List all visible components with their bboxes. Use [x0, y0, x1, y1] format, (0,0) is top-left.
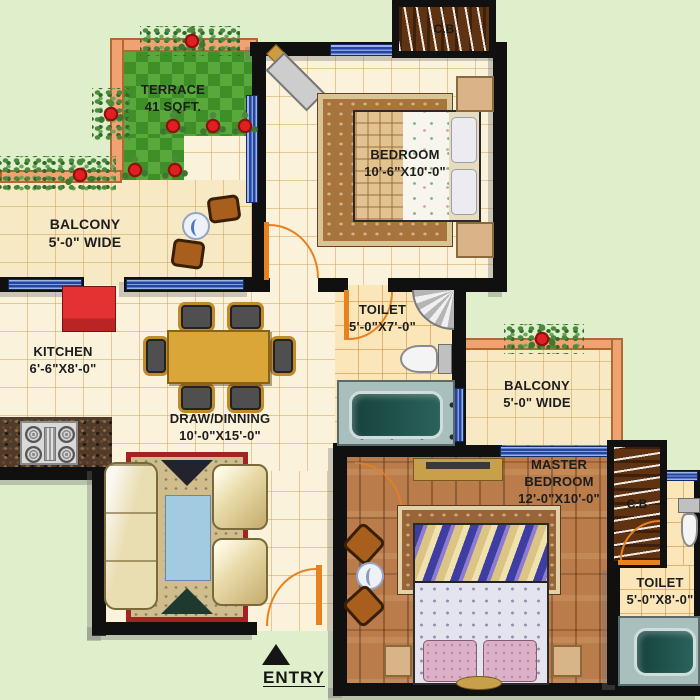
- bathtub: [634, 628, 696, 676]
- dining-chair: [143, 336, 169, 376]
- draw-dining-label: DRAW/DINNING 10'-0"X15'-0": [145, 411, 295, 445]
- tv-unit: [413, 458, 503, 481]
- balcony-left-label: BALCONY 5'-0" WIDE: [30, 215, 140, 251]
- master-bed: [413, 523, 549, 685]
- window-balcony-left-b: [126, 279, 244, 290]
- entry-door-leaf: [316, 565, 322, 625]
- master-round-table: [356, 562, 384, 590]
- kitchen-label: KITCHEN 6'-6"X8'-0": [8, 344, 118, 378]
- toilet-top-name: TOILET: [340, 302, 425, 319]
- burner-icon: [25, 426, 42, 443]
- window-toilet-right: [662, 471, 698, 481]
- burner-icon: [58, 426, 75, 443]
- balcony-table: [182, 212, 210, 240]
- toilet-right-tub-platform: [618, 616, 700, 686]
- bathtub: [349, 391, 443, 439]
- master-bedroom-label: MASTER BEDROOM 12'-0"X10'-0": [498, 457, 620, 508]
- kitchen-name: KITCHEN: [8, 344, 118, 361]
- balcony-chair-1: [206, 194, 241, 224]
- wc-bowl: [400, 345, 438, 373]
- bedroom-dims: 10'-6"X10'-0": [345, 164, 465, 181]
- wc-tank: [678, 498, 700, 513]
- wall-bedroom-right: [493, 42, 507, 292]
- dining-table: [167, 330, 270, 384]
- toilet-right-label: TOILET 5'-0"X8'-0": [620, 575, 700, 609]
- wall-master-left: [333, 443, 347, 693]
- terrace-tile-notch: [184, 136, 252, 180]
- rose-terrace-3: [230, 112, 260, 140]
- sofa-three-seater: [104, 462, 158, 610]
- dining-chair: [270, 336, 296, 376]
- balcony-left-name: BALCONY: [30, 215, 140, 233]
- wall-dining-bottom: [92, 622, 257, 635]
- rose-terrace-5: [160, 156, 190, 184]
- floor-plan: C.B C.B: [0, 0, 700, 700]
- master-name-1: MASTER: [498, 457, 620, 474]
- terrace-label: TERRACE 41 SQFT.: [128, 82, 218, 116]
- toilet-top-wc: [400, 342, 452, 376]
- master-nightstand: [552, 645, 582, 677]
- entry-label: ENTRY: [248, 668, 340, 688]
- toilet-right-name: TOILET: [620, 575, 700, 592]
- balcony-chair-2: [170, 238, 206, 270]
- bedroom-name: BEDROOM: [345, 147, 465, 164]
- toilet-top-dims: 5'-0"X7'-0": [340, 319, 425, 336]
- nightstand: [456, 76, 494, 112]
- dining-chair: [227, 383, 264, 413]
- balcony-right-wall-side: [611, 338, 623, 446]
- window-bedroom-top: [330, 44, 398, 56]
- rose-balcony-left: [62, 158, 98, 192]
- balcony-table-glyph: [191, 219, 204, 236]
- rose-terrace-left: [96, 100, 126, 128]
- wc-tank: [438, 344, 452, 374]
- coffee-table: [165, 495, 211, 581]
- dining-chair: [178, 302, 215, 332]
- wall-master-top-a: [346, 445, 502, 457]
- toilet-right-door-leaf: [618, 560, 660, 565]
- window-master-top: [500, 446, 612, 457]
- master-pillow: [483, 640, 537, 682]
- gas-stove: [20, 421, 78, 465]
- toilet-right-dims: 5'-0"X8'-0": [620, 592, 700, 609]
- wc-bowl: [681, 513, 698, 547]
- dining-chair: [227, 302, 264, 332]
- wall-bedroom-bottom-a: [250, 278, 270, 292]
- armchair-2: [212, 538, 268, 606]
- bed-bench: [456, 676, 502, 690]
- rose-terrace-1: [158, 112, 188, 140]
- cupboard-top-label: C.B: [399, 7, 489, 51]
- draw-dining-dims: 10'-0"X15'-0": [145, 428, 295, 445]
- burner-icon: [58, 446, 75, 463]
- toilet-right-wc: [678, 498, 700, 550]
- cupboard-top: C.B: [392, 0, 496, 58]
- nightstand: [456, 222, 494, 258]
- toilet-top-tub-platform: [337, 380, 455, 446]
- balcony-right-label: BALCONY 5'-0" WIDE: [482, 378, 592, 412]
- master-name-2: BEDROOM: [498, 474, 620, 491]
- rose-balcony-right: [526, 324, 558, 354]
- entry-arrow-icon: [262, 644, 290, 665]
- dining-chair: [178, 383, 215, 413]
- rug-pattern-bottom: [161, 588, 213, 614]
- armchair-1: [212, 464, 268, 530]
- table-glyph: [366, 568, 377, 586]
- burner-icon: [25, 446, 42, 463]
- balcony-right-dims: 5'-0" WIDE: [482, 395, 592, 412]
- master-dims: 12'-0"X10'-0": [498, 491, 620, 508]
- toilet-top-label: TOILET 5'-0"X7'-0": [340, 302, 425, 336]
- terrace-name: TERRACE: [128, 82, 218, 99]
- kitchen-dims: 6'-6"X8'-0": [8, 361, 118, 378]
- tv-screen: [426, 462, 490, 469]
- bedroom-label: BEDROOM 10'-6"X10'-0": [345, 147, 465, 181]
- refrigerator: [62, 286, 116, 332]
- wall-kitchen-bottom: [0, 466, 106, 480]
- rose-terrace-2: [198, 112, 228, 140]
- flower-box-balcony-left: [0, 156, 116, 192]
- terrace-dims: 41 SQFT.: [128, 99, 218, 116]
- balcony-left-dims: 5'-0" WIDE: [30, 233, 140, 251]
- balcony-right-name: BALCONY: [482, 378, 592, 395]
- rose-terrace-top: [176, 26, 208, 56]
- rug-pattern-top: [161, 460, 213, 486]
- stove-grill: [44, 427, 56, 461]
- draw-dining-name: DRAW/DINNING: [145, 411, 295, 428]
- rose-terrace-4: [120, 156, 150, 184]
- master-bed-blanket: [415, 525, 547, 583]
- master-nightstand: [384, 645, 412, 677]
